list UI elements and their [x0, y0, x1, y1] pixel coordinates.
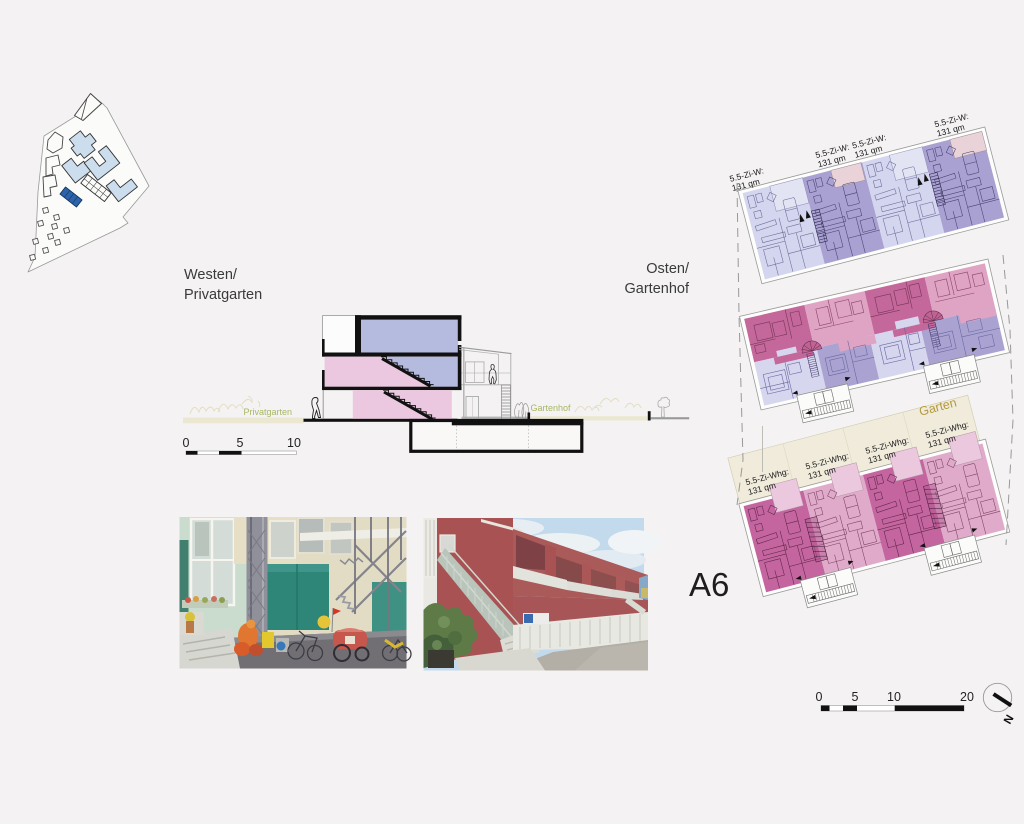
- svg-text:10: 10: [887, 690, 901, 704]
- svg-text:0: 0: [816, 690, 823, 704]
- svg-text:Privatgarten: Privatgarten: [244, 407, 293, 417]
- svg-text:20: 20: [960, 690, 974, 704]
- svg-text:5: 5: [237, 436, 244, 450]
- svg-text:Westen/: Westen/: [184, 267, 238, 283]
- svg-text:Gartenhof: Gartenhof: [625, 281, 690, 297]
- svg-text:10: 10: [287, 436, 301, 450]
- svg-text:A6: A6: [689, 566, 729, 603]
- svg-text:Gartenhof: Gartenhof: [531, 403, 572, 413]
- svg-text:0: 0: [183, 436, 190, 450]
- svg-text:Privatgarten: Privatgarten: [184, 287, 262, 303]
- svg-text:Osten/: Osten/: [646, 261, 690, 277]
- svg-text:5: 5: [852, 690, 859, 704]
